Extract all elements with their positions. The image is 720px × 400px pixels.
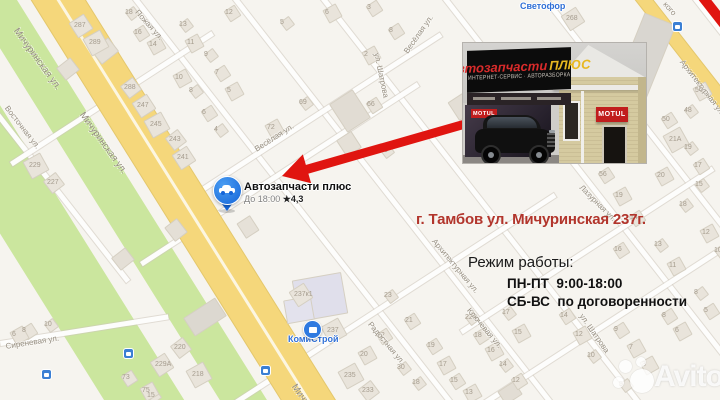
house-number: 3 xyxy=(367,3,371,12)
house-number: 13 xyxy=(179,20,187,29)
house-number: 243 xyxy=(169,135,181,144)
house-number: 75 xyxy=(142,386,150,395)
house-number: 229 xyxy=(29,161,41,170)
house-number: 5 xyxy=(280,18,284,27)
marker-title: Автозапчасти плюс xyxy=(244,181,351,193)
downpipe xyxy=(581,91,584,163)
poi-label: Светофор xyxy=(520,1,565,11)
building xyxy=(236,215,259,239)
store-icon xyxy=(303,320,322,339)
house-number: 56 xyxy=(599,170,607,179)
map-canvas[interactable]: 1816141312119710865428728928824724524324… xyxy=(0,0,720,400)
avito-logo-circle xyxy=(613,377,624,388)
house-number: 287 xyxy=(74,21,86,30)
avito-logo-circle xyxy=(619,360,632,373)
house-number: 241 xyxy=(177,153,189,162)
bus-stop-icon xyxy=(124,349,133,358)
house-number: 8 xyxy=(189,86,193,95)
house-number: 50 xyxy=(662,115,670,124)
location-marker[interactable] xyxy=(213,176,242,205)
bus-stop-icon xyxy=(261,366,270,375)
house-number: 20 xyxy=(360,350,368,359)
house-number: 69 xyxy=(299,98,307,107)
house-number: 235 xyxy=(344,371,356,380)
doorway xyxy=(602,125,627,164)
house-number: 12 xyxy=(225,8,233,17)
house-number: 247 xyxy=(137,101,149,110)
suv-car-photo xyxy=(473,115,559,161)
house-number: 4 xyxy=(214,125,218,134)
house-number: 10 xyxy=(714,246,720,255)
house-number: 9 xyxy=(614,325,618,334)
house-number: 17 xyxy=(502,308,510,317)
house-number: 10 xyxy=(44,320,52,329)
house-number: 233 xyxy=(362,386,374,395)
house-number: 20 xyxy=(657,171,665,180)
avito-logo-circle xyxy=(630,369,654,393)
house-number: 6 xyxy=(12,330,16,339)
house-number: 12 xyxy=(702,228,710,237)
house-number: 19 xyxy=(684,143,692,152)
house-number: 2 xyxy=(364,50,368,59)
house-number: 15 xyxy=(450,376,458,385)
house-number: 18 xyxy=(474,331,482,340)
house-number: 19 xyxy=(427,341,435,350)
listing-image: 1816141312119710865428728928824724524324… xyxy=(0,0,720,400)
billboard-sign: АвтозапчастиПЛЮС ИНТЕРНЕТ-СЕРВИС · АВТОР… xyxy=(467,47,571,93)
work-hours-weekend: СБ-ВС по договоренности xyxy=(507,294,687,309)
marker-subtitle: До 18:00 ★4,3 xyxy=(244,194,303,205)
house-number: 8 xyxy=(662,311,666,320)
house-number: 10 xyxy=(175,73,183,82)
house-number: 14 xyxy=(149,40,157,49)
house-number: 288 xyxy=(124,83,136,92)
house-number: 289 xyxy=(89,38,101,47)
house-number: 16 xyxy=(614,245,622,254)
house-number: 12 xyxy=(575,330,583,339)
house-number: 48 xyxy=(684,106,692,115)
storefront-photo: MOTUL АвтозапчастиПЛЮС ИНТЕРНЕТ-СЕРВИС ·… xyxy=(462,42,647,164)
house-number: 6 xyxy=(675,326,679,335)
bus-stop-icon xyxy=(42,370,51,379)
marker-rating: 4,3 xyxy=(291,194,304,204)
house-number: 14 xyxy=(499,360,507,369)
house-number: 5 xyxy=(227,86,231,95)
house-number: 6 xyxy=(202,108,206,117)
address-text: г. Тамбов ул. Мичуринская 237г. xyxy=(416,211,646,228)
house-number: 17 xyxy=(439,360,447,369)
house-number: 18 xyxy=(412,378,420,387)
marker-pointer xyxy=(222,204,232,211)
sign-text-plus: ПЛЮС xyxy=(549,57,590,73)
car-icon xyxy=(219,185,235,195)
house-number: 220 xyxy=(174,343,186,352)
work-hours-title: Режим работы: xyxy=(468,254,574,271)
house-number: 66 xyxy=(367,100,375,109)
house-number: 229А xyxy=(155,360,171,369)
house-number: 237к1 xyxy=(294,290,313,299)
house-number: 14 xyxy=(560,311,568,320)
house-number: 16 xyxy=(134,28,142,37)
avito-logo-text: Avito xyxy=(654,360,720,394)
house-number: 218 xyxy=(192,370,204,379)
house-number: 11 xyxy=(187,38,194,47)
house-number: 8 xyxy=(389,26,393,35)
house-number: 13 xyxy=(654,240,662,249)
star-icon: ★ xyxy=(283,194,291,204)
house-number: 18 xyxy=(679,200,687,209)
house-number: 13 xyxy=(465,388,473,397)
house-number: 18 xyxy=(125,8,133,17)
bus-stop-icon xyxy=(673,22,682,31)
house-number: 11 xyxy=(669,261,676,270)
house-number: 8 xyxy=(694,288,698,297)
house-number: 8 xyxy=(22,326,26,335)
house-number: 73 xyxy=(122,373,130,382)
house-number: 10 xyxy=(587,351,595,360)
house-number: 268 xyxy=(566,14,578,23)
house-window xyxy=(563,101,580,141)
house-number: 227 xyxy=(47,178,59,187)
house-number: 16 xyxy=(487,346,495,355)
house-number: 7 xyxy=(629,343,633,352)
avito-logo-circle xyxy=(636,357,646,367)
house-number: 6 xyxy=(325,8,329,17)
house-number: 15 xyxy=(695,180,703,189)
work-hours-weekdays: ПН-ПТ 9:00-18:00 xyxy=(507,276,622,291)
house-number: 72 xyxy=(267,123,275,132)
motul-sign: MOTUL xyxy=(596,107,628,122)
ad-banner xyxy=(467,93,571,105)
marker-hours: До 18:00 xyxy=(244,194,280,204)
house-number: 7 xyxy=(215,68,219,77)
house-number: 9 xyxy=(204,50,208,59)
house-number: 17 xyxy=(694,161,702,170)
house-number: 12 xyxy=(512,376,520,385)
house-number: 15 xyxy=(514,328,522,337)
house-number: 23 xyxy=(384,291,392,300)
house-number: 19 xyxy=(615,191,623,200)
house-number: 21 xyxy=(405,316,413,325)
house-number: 5 xyxy=(704,306,708,315)
house-number: 21А xyxy=(669,135,681,144)
house-number: 245 xyxy=(150,120,162,129)
